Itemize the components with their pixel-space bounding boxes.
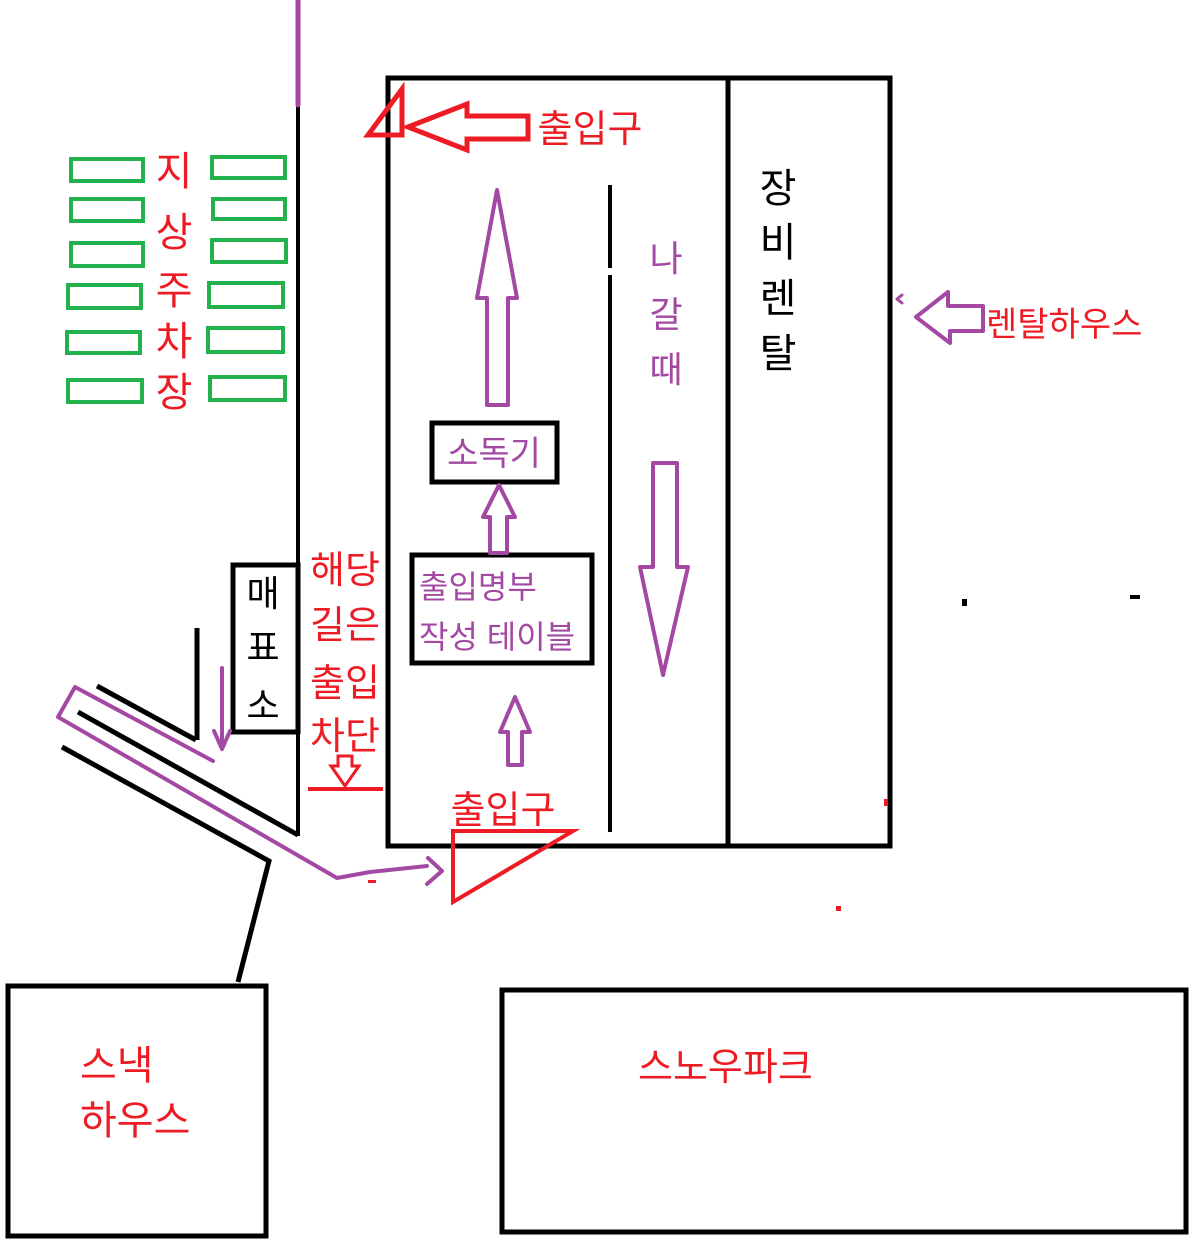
left-arrow-rental-house [916, 292, 983, 343]
stray-red-dot [836, 906, 841, 911]
exit-lane-label-char: 갈 [649, 294, 682, 335]
stray-red-dot [884, 799, 888, 806]
parking-stall [71, 243, 143, 266]
stray-black-dash [1130, 595, 1140, 599]
blocked-path-line: 출입 [310, 663, 380, 705]
ticket-office-char: 소 [246, 685, 279, 726]
parking-label-char: 주 [156, 269, 193, 313]
stray-red-dash [368, 880, 376, 883]
equipment-rental-char: 렌 [760, 277, 797, 321]
parking-label-char: 상 [156, 211, 193, 255]
blocked-path-line: 차단 [310, 716, 380, 758]
parking-label-char: 차 [156, 320, 193, 364]
parking-stall [212, 240, 286, 262]
ticket-office-char: 표 [246, 627, 279, 668]
entry-table-label-line1: 출입명부 [419, 569, 537, 605]
rental-house-label: 렌탈하우스 [986, 306, 1142, 344]
parking-stall [212, 157, 285, 178]
bottom-entrance-label: 출입구 [451, 790, 556, 832]
walking-route-arrowhead [427, 858, 442, 884]
exit-lane-label-char: 때 [649, 349, 682, 390]
ticket-office-char: 매 [246, 573, 279, 614]
top-entrance-label: 출입구 [538, 109, 643, 151]
parking-stall [209, 283, 283, 307]
parking-label-char: 지 [156, 150, 193, 194]
parking-stall [68, 285, 141, 308]
black-linework [62, 78, 1140, 982]
snack-house-label-line1: 스낵 [80, 1044, 154, 1088]
site-map-svg: 지 상 주 차 장 출입구 렌탈하우스 해당 길은 출입 차단 출입구 스낵 하… [0, 0, 1199, 1240]
parking-stall [71, 159, 143, 181]
top-entrance-triangle [368, 89, 402, 135]
snack-house-label-line2: 하우스 [80, 1099, 190, 1143]
sanitizer-label: 소독기 [447, 435, 541, 473]
blocked-path-line: 길은 [310, 605, 380, 647]
blocked-path-line: 해당 [310, 550, 380, 592]
down-arrow-exit-lane [640, 463, 688, 675]
up-arrow-to-sanitizer [483, 485, 515, 553]
stray-black-dot [962, 599, 967, 606]
equipment-rental-char: 장 [760, 167, 797, 211]
top-entrance-arrow [408, 104, 528, 150]
blocked-path-down-arrow [331, 756, 359, 786]
snow-park-label: 스노우파크 [638, 1047, 813, 1089]
red-shapes [308, 89, 888, 911]
hand-drawn-site-map: 지 상 주 차 장 출입구 렌탈하우스 해당 길은 출입 차단 출입구 스낵 하… [0, 0, 1199, 1240]
up-arrow-large [477, 190, 517, 405]
parking-label-char: 장 [156, 371, 193, 415]
exit-lane-label-char: 나 [649, 238, 682, 279]
road-edge-bottom [62, 747, 269, 982]
snow-park-box [502, 990, 1186, 1232]
stray-purple-tick [897, 295, 902, 303]
up-arrow-to-table [500, 697, 530, 765]
bottom-entrance-triangle [453, 831, 573, 902]
parking-stall [67, 332, 140, 353]
parking-stall [71, 199, 143, 221]
parking-stall [208, 328, 283, 352]
equipment-rental-char: 비 [760, 221, 797, 265]
entry-table-label-line2: 작성 테이블 [419, 619, 575, 655]
equipment-rental-char: 탈 [760, 332, 797, 376]
parking-stall [210, 377, 285, 400]
parking-stall [213, 199, 285, 219]
parking-stall [68, 380, 142, 402]
